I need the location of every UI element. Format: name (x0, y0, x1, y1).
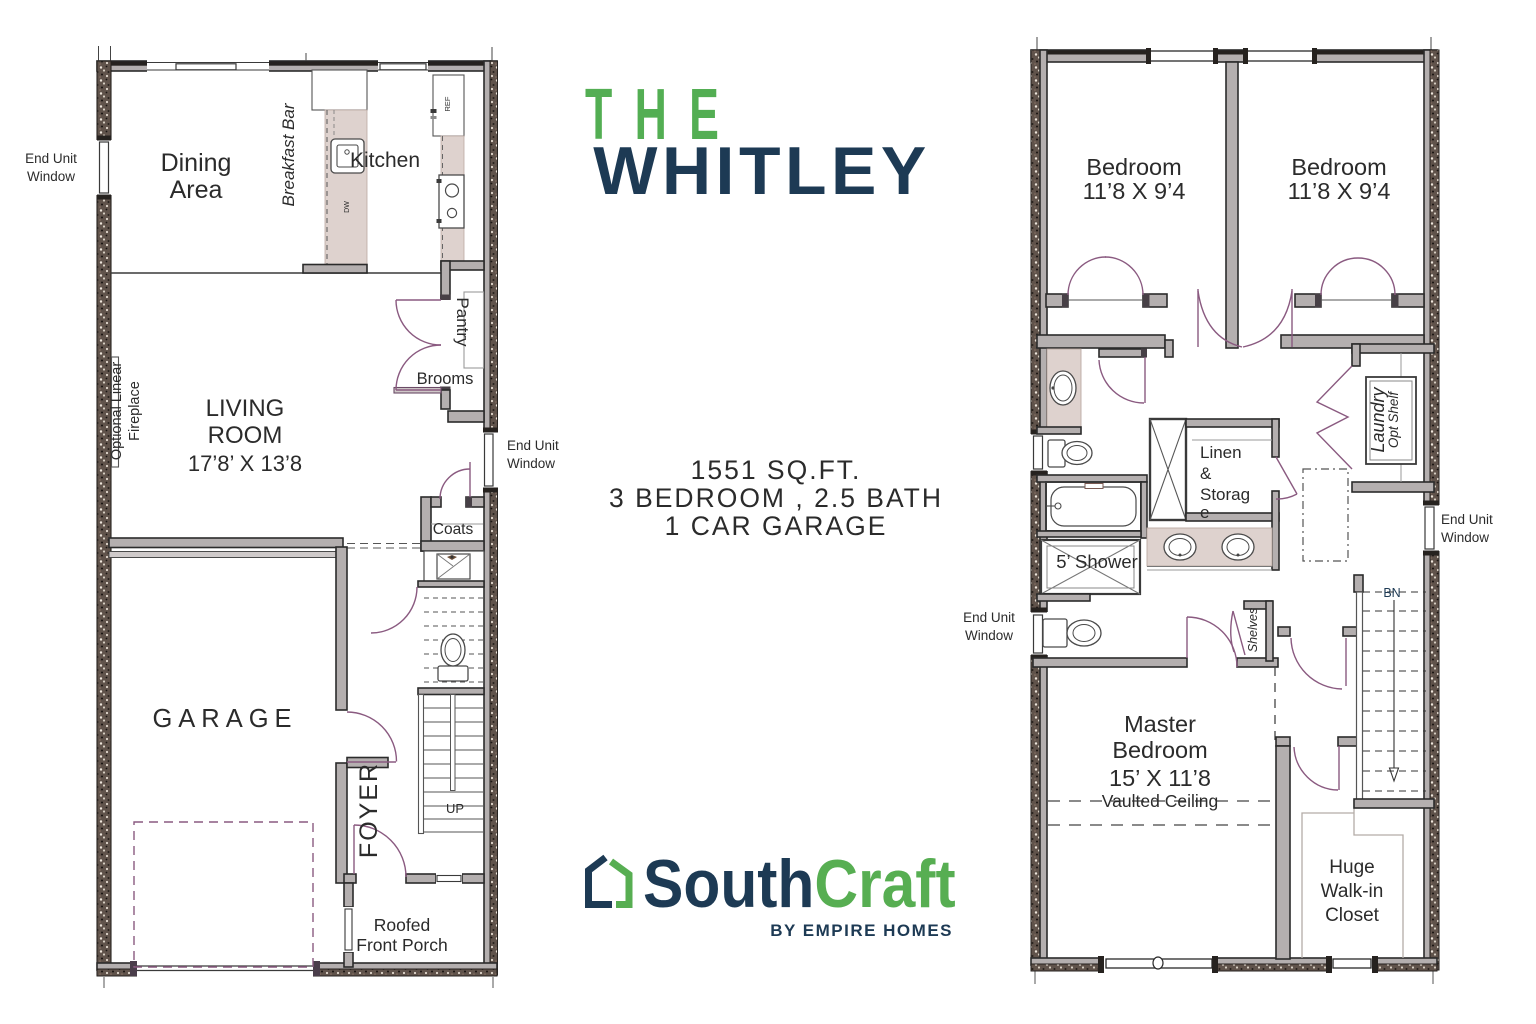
svg-text:Roofed: Roofed (374, 915, 430, 935)
svg-text:11’8 X 9’4: 11’8 X 9’4 (1083, 178, 1186, 204)
svg-text:Storag: Storag (1200, 485, 1250, 504)
svg-text:Window: Window (27, 169, 75, 184)
svg-text:&: & (1200, 464, 1212, 483)
svg-text:Vaulted Ceiling: Vaulted Ceiling (1102, 791, 1218, 811)
svg-text:ROOM: ROOM (208, 422, 283, 449)
svg-text:SouthCraft: SouthCraft (643, 846, 956, 922)
svg-text:Window: Window (507, 456, 555, 471)
svg-text:Walk-in: Walk-in (1321, 881, 1384, 902)
svg-text:LIVING: LIVING (206, 395, 285, 422)
svg-text:End Unit: End Unit (1441, 512, 1493, 527)
svg-text:5’ Shower: 5’ Shower (1056, 551, 1138, 572)
svg-text:UP: UP (446, 801, 464, 816)
svg-text:Opt Shelf: Opt Shelf (1386, 391, 1401, 449)
svg-text:11’8 X 9’4: 11’8 X 9’4 (1288, 178, 1391, 204)
svg-text:Window: Window (1441, 530, 1489, 545)
svg-text:End Unit: End Unit (963, 610, 1015, 625)
svg-text:Kitchen: Kitchen (350, 149, 420, 172)
svg-text:Fireplace: Fireplace (127, 381, 143, 441)
svg-text:1551 SQ.FT.: 1551 SQ.FT. (691, 455, 862, 485)
svg-text:17’8’ X 13’8: 17’8’ X 13’8 (188, 451, 302, 476)
svg-text:e: e (1200, 503, 1209, 522)
svg-text:WHITLEY: WHITLEY (593, 133, 930, 209)
svg-text:Coats: Coats (433, 521, 474, 538)
svg-text:Huge: Huge (1329, 857, 1374, 878)
svg-text:1 CAR GARAGE: 1 CAR GARAGE (665, 511, 888, 541)
svg-text:Master: Master (1124, 711, 1196, 737)
svg-text:BY EMPIRE HOMES: BY EMPIRE HOMES (770, 921, 953, 940)
svg-text:15’ X 11’8: 15’ X 11’8 (1109, 765, 1211, 791)
svg-text:Laundry: Laundry (1368, 386, 1388, 452)
svg-text:FOYER: FOYER (355, 762, 383, 858)
svg-text:Closet: Closet (1325, 905, 1380, 926)
svg-text:Breakfast Bar: Breakfast Bar (279, 102, 298, 206)
svg-text:Area: Area (170, 176, 223, 204)
svg-text:End Unit: End Unit (507, 438, 559, 453)
svg-text:Dining: Dining (161, 149, 232, 177)
svg-text:Linen: Linen (1200, 443, 1242, 462)
svg-text:Bedroom: Bedroom (1112, 737, 1207, 763)
svg-text:Optional Linear: Optional Linear (109, 362, 125, 461)
svg-text:Shelves: Shelves (1246, 608, 1260, 652)
svg-text:BN: BN (1383, 586, 1400, 600)
svg-text:Window: Window (965, 628, 1013, 643)
svg-text:Pantry: Pantry (453, 297, 472, 347)
svg-text:Brooms: Brooms (417, 370, 474, 388)
svg-text:Bedroom: Bedroom (1291, 154, 1386, 180)
svg-text:Front Porch: Front Porch (356, 935, 447, 955)
svg-text:DW: DW (344, 201, 351, 213)
svg-text:REF: REF (443, 96, 452, 111)
svg-text:3 BEDROOM , 2.5 BATH: 3 BEDROOM , 2.5 BATH (609, 483, 943, 513)
svg-text:End Unit: End Unit (25, 151, 77, 166)
svg-text:GARAGE: GARAGE (152, 705, 297, 733)
svg-text:Bedroom: Bedroom (1086, 154, 1181, 180)
